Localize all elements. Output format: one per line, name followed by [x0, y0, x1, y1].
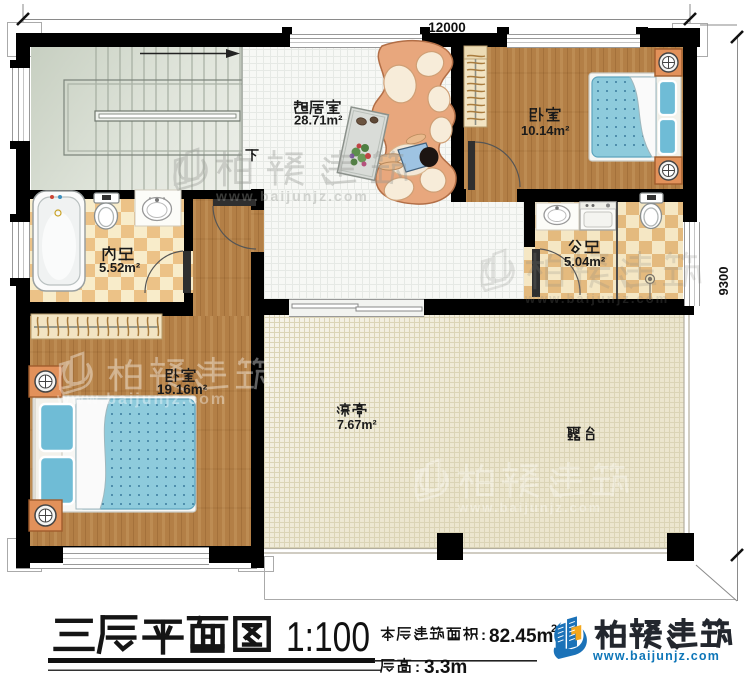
svg-text::: : [481, 627, 486, 644]
svg-text:12000: 12000 [428, 20, 466, 35]
svg-text:10.14m²: 10.14m² [521, 123, 570, 138]
svg-text:19.16m²: 19.16m² [157, 382, 208, 397]
svg-text:9300: 9300 [716, 267, 731, 296]
svg-text:www.baijunjz.com: www.baijunjz.com [457, 500, 602, 515]
svg-text:5.52m²: 5.52m² [99, 260, 141, 275]
svg-text:5.04m²: 5.04m² [564, 254, 606, 269]
svg-text:7.67m²: 7.67m² [337, 418, 377, 432]
svg-text:82.45m: 82.45m [489, 626, 553, 647]
svg-text:www.baijunjz.com: www.baijunjz.com [215, 188, 369, 204]
svg-text::: : [415, 659, 420, 676]
svg-text:www.baijunjz.com: www.baijunjz.com [524, 291, 669, 306]
svg-text:28.71m²: 28.71m² [294, 113, 343, 128]
svg-text:3.3m: 3.3m [424, 657, 467, 678]
svg-text:1:100: 1:100 [286, 613, 370, 660]
svg-text:www.baijunjz.com: www.baijunjz.com [592, 649, 720, 663]
